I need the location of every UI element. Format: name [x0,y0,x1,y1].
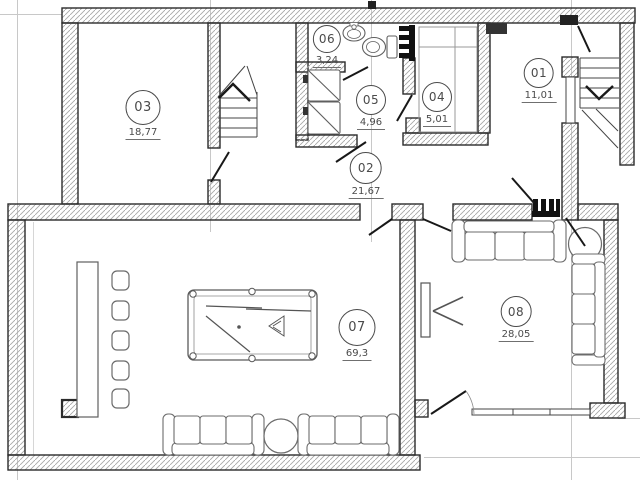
wall [478,23,490,133]
wall [562,123,578,220]
staircase-up-icon [218,66,257,137]
sofa-icon [298,414,399,455]
bar-stool-icon [112,271,129,408]
wall [62,8,635,23]
wall [392,204,423,220]
floor-plan: 01 11,01 02 21,67 03 18,77 04 5,01 05 4,… [0,0,640,480]
room-area: 3,24 [313,55,341,68]
wall [208,180,220,204]
wall [62,23,78,204]
room-area: 5,01 [423,114,451,127]
room-number: 06 [319,32,335,46]
billiard-table-icon [188,288,317,361]
sofa-icon [452,220,566,262]
room-number: 04 [429,90,445,104]
room-number: 01 [531,66,547,80]
room-number: 03 [134,100,152,115]
room-label-07: 07 69,3 [339,309,376,361]
round-table-icon [264,419,298,453]
room-number-badge: 06 [313,25,341,53]
wall [403,133,488,145]
room-number-badge: 07 [339,309,376,346]
toilet-icon [363,36,398,58]
room-number: 05 [363,93,379,107]
room-number-badge: 03 [126,90,161,125]
radiator-icon [532,199,560,217]
wall [604,220,618,403]
window-icon [566,77,575,123]
wall [620,23,634,165]
room-label-08: 08 28,05 [499,296,534,342]
room-label-06: 06 3,24 [313,25,341,68]
sofa-icon [572,254,605,365]
room-number: 07 [348,320,366,335]
wall [208,23,220,148]
room-label-04: 04 5,01 [422,82,452,127]
room-number: 02 [358,161,374,175]
wall [590,403,625,418]
room-area: 18,77 [126,127,161,140]
wall [296,135,357,147]
room-area: 21,67 [349,186,384,199]
wall [400,220,415,455]
room-area: 69,3 [343,348,371,361]
bar-counter-icon [77,262,98,417]
wall [578,204,618,220]
wall [8,204,360,220]
window-icon [472,409,590,415]
room-label-05: 05 4,96 [356,85,386,130]
wall [562,57,578,77]
towel-rail-icon [399,25,415,61]
room-number-badge: 08 [500,296,531,327]
sink-icon [343,23,365,42]
room-label-03: 03 18,77 [126,90,161,140]
room-label-01: 01 11,01 [522,58,557,103]
tv-icon [421,283,463,337]
wall [453,204,532,220]
wall [8,220,25,455]
room-label-02: 02 21,67 [349,152,384,199]
room-area: 4,96 [357,117,385,130]
room-number-badge: 02 [350,152,382,184]
room-number-badge: 05 [356,85,386,115]
room-number-badge: 04 [422,82,452,112]
wall [415,400,428,417]
wall [8,455,420,470]
staircase-down-icon [580,58,619,148]
wall [403,58,415,94]
wall [406,118,420,133]
room-number: 08 [508,305,524,319]
room-area: 28,05 [499,329,534,342]
room-area: 11,01 [522,90,557,103]
sofa-icon [163,414,264,455]
washing-machine-icon [303,70,340,134]
room-number-badge: 01 [524,58,554,88]
bar-column [62,400,78,417]
